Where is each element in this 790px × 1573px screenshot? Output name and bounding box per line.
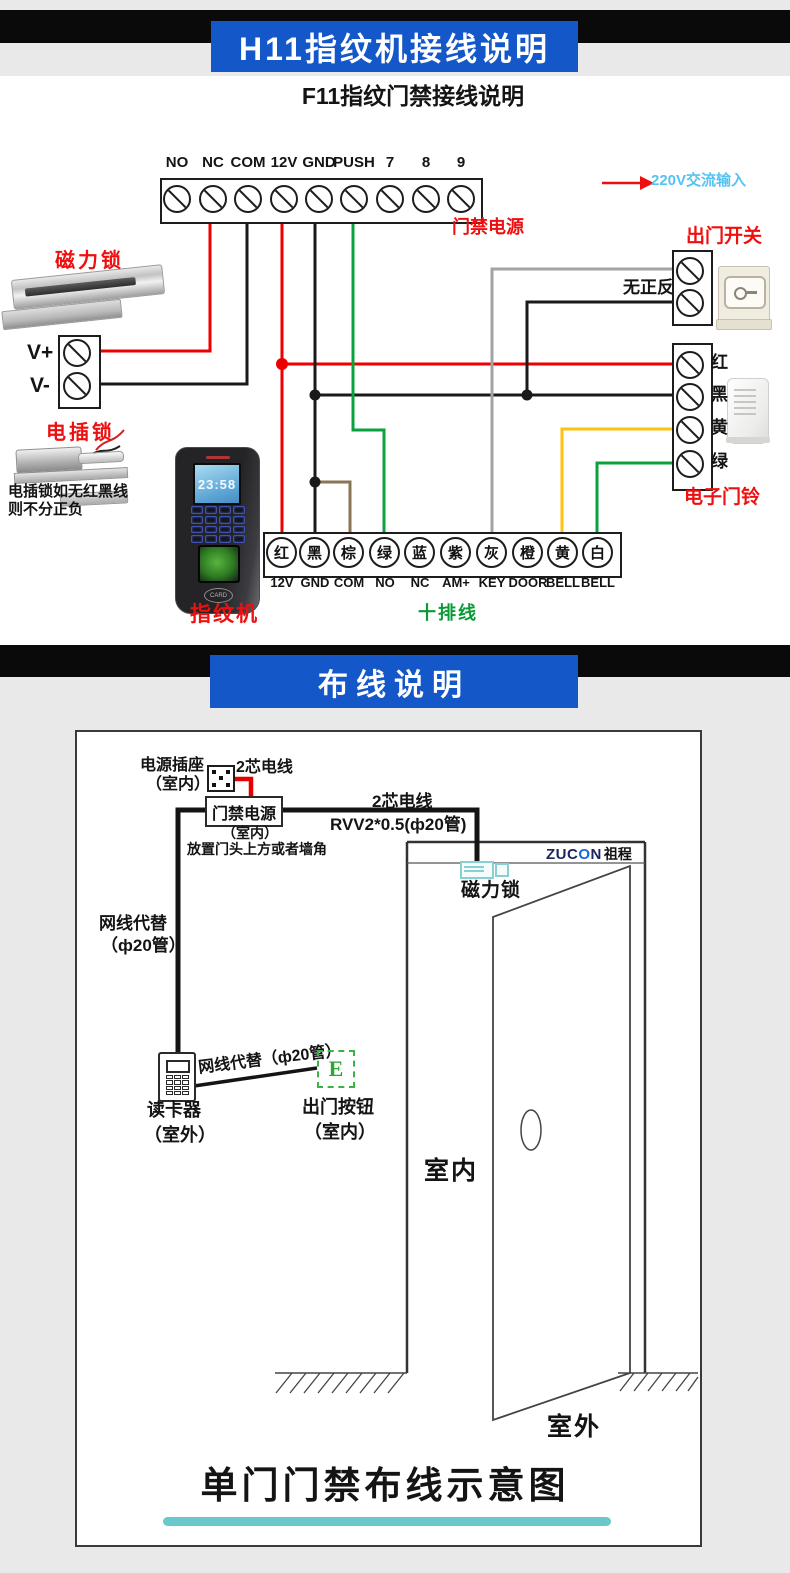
net-cable-left-line2: （ф20管） — [101, 937, 186, 956]
ten-wire-pin-label: BELL — [581, 576, 615, 590]
power-strip-screw-PUSH — [340, 185, 368, 213]
exit-button-label-line1: 出门按钮 — [302, 1098, 374, 1118]
section1-header: H11指纹机接线说明 — [211, 21, 578, 72]
psu-sub1: （室内） — [222, 826, 278, 841]
ten-wire-terminal-BELL: 黄 — [547, 537, 578, 568]
doorbell-terminal-label: 黄 — [711, 419, 728, 438]
maglock-label: 磁力锁 — [55, 250, 124, 272]
outdoor-label: 室外 — [547, 1414, 601, 1442]
section1-title: H11指纹机接线说明 — [239, 24, 550, 70]
doorbell-terminal-label: 红 — [711, 354, 728, 373]
fingerprint-device-photo: 23:58 CARD — [175, 447, 260, 614]
fingerprint-label: 指纹机 — [190, 603, 259, 626]
exit-button-photo — [718, 266, 770, 322]
doorbell-screw-4 — [676, 450, 704, 478]
power-strip-caption: 门禁电源 — [452, 218, 524, 238]
ten-wire-pin-label: NC — [411, 576, 430, 590]
psu-box-label: 门禁电源 — [212, 800, 276, 824]
reader-label-line1: 读卡器 — [147, 1101, 201, 1121]
power-strip-pin-label: NC — [202, 155, 224, 172]
ten-wire-pin-label: COM — [334, 576, 364, 590]
doorbell-screw-1 — [676, 351, 704, 379]
exit-switch-label: 出门开关 — [686, 227, 762, 248]
ten-wire-pin-label: GND — [301, 576, 330, 590]
two-core-wire-label-b2: RVV2*0.5(ф20管) — [330, 816, 466, 835]
ten-wire-terminal-NC: 蓝 — [404, 537, 435, 568]
doorbell-screw-3 — [676, 416, 704, 444]
v-plus-label: V+ — [27, 341, 53, 364]
wiring-lines — [0, 0, 790, 1573]
top-subtitle: F11指纹门禁接线说明 — [302, 84, 524, 109]
ten-wire-terminal-COM: 棕 — [333, 537, 364, 568]
exit-button-base — [716, 319, 772, 330]
ten-wire-terminal-KEY: 灰 — [476, 537, 507, 568]
psu-sub2: 放置门头上方或者墙角 — [187, 842, 327, 857]
fingerprint-screen: 23:58 — [193, 463, 241, 505]
fingerprint-led — [206, 456, 230, 459]
bottom-diagram-title: 单门门禁布线示意图 — [201, 1466, 570, 1507]
power-strip-pin-label: 9 — [457, 155, 465, 172]
socket-label-line2: （室内） — [146, 776, 210, 794]
power-strip-pin-label: 12V — [271, 155, 298, 172]
brand-cn: 祖程 — [604, 846, 632, 862]
bolt-note-line2: 则不分正负 — [8, 502, 83, 519]
section2-title: 布线说明 — [318, 660, 470, 704]
ten-wire-terminal-12V: 红 — [266, 537, 297, 568]
maglock-schematic-icon — [460, 861, 494, 879]
doorbell-screw-2 — [676, 383, 704, 411]
ten-wire-pin-label: 12V — [270, 576, 293, 590]
exit-button-panel — [724, 276, 766, 309]
ten-wire-pin-label: NO — [375, 576, 395, 590]
ten-wire-pin-label: DOOR — [509, 576, 548, 590]
exit-switch-screw-1 — [676, 257, 704, 285]
ten-wire-terminal-AM+: 紫 — [440, 537, 471, 568]
page: H11指纹机接线说明 布线说明 F11指纹门禁接线说明 门禁电源 220V交流输… — [0, 0, 790, 1573]
maglock-armature-icon — [495, 863, 509, 877]
maglock-schematic-label: 磁力锁 — [461, 881, 521, 902]
bolt-lock-label: 电插锁 — [46, 422, 115, 444]
fingerprint-clock: 23:58 — [198, 477, 236, 492]
reader-label-line2: （室外） — [144, 1126, 216, 1146]
v-minus-screw — [63, 372, 91, 400]
power-strip-pin-label: 8 — [422, 155, 430, 172]
exit-switch-screw-2 — [676, 289, 704, 317]
brand-gear-icon: O — [578, 846, 590, 863]
ten-wire-terminal-GND: 黑 — [299, 537, 330, 568]
bolt-note-line1: 电插锁如无红黑线 — [8, 484, 128, 501]
door-panel — [493, 866, 630, 1420]
power-strip-screw-8 — [412, 185, 440, 213]
power-socket-icon — [207, 765, 235, 792]
doorbell-photo — [727, 378, 769, 444]
doorbell-base — [726, 437, 770, 443]
net-cable-left-line1: 网线代替 — [99, 915, 167, 934]
doorbell-terminal-label: 绿 — [711, 453, 728, 472]
socket-label-line1: 电源插座 — [140, 757, 204, 775]
ten-wire-pin-label: KEY — [479, 576, 506, 590]
psu-box: 门禁电源 — [205, 796, 283, 827]
card-reader-keypad — [166, 1075, 189, 1095]
ten-wire-caption: 十排线 — [418, 604, 478, 624]
ten-wire-pin-label: BELL — [546, 576, 580, 590]
fingerprint-card-area: CARD — [204, 588, 233, 603]
junction-black-3 — [310, 477, 321, 488]
two-core-wire-label-a: 2芯电线 — [236, 759, 293, 777]
power-strip-pin-label: PUSH — [333, 155, 375, 172]
card-reader-display — [166, 1060, 190, 1073]
exit-button-letter: E — [329, 1056, 344, 1082]
ten-wire-pin-label: AM+ — [442, 576, 470, 590]
fingerprint-sensor — [198, 545, 240, 583]
power-strip-screw-GND — [305, 185, 333, 213]
ac-input-label: 220V交流输入 — [651, 173, 746, 190]
junction-red — [276, 358, 288, 370]
power-strip-pin-label: COM — [231, 155, 266, 172]
power-strip-screw-COM — [234, 185, 262, 213]
doorbell-speaker — [734, 389, 756, 417]
power-strip-screw-9 — [447, 185, 475, 213]
power-strip-pin-label: GND — [302, 155, 335, 172]
brand-zuc: ZUC — [546, 846, 578, 863]
ten-wire-terminal-BELL: 白 — [582, 537, 613, 568]
power-strip-screw-12V — [270, 185, 298, 213]
key-icon-bar — [746, 291, 757, 294]
exit-button-symbol: E — [317, 1050, 355, 1088]
ten-wire-terminal-DOOR: 橙 — [512, 537, 543, 568]
title-underline — [163, 1517, 611, 1526]
v-plus-screw — [63, 339, 91, 367]
brand-n: N — [591, 846, 602, 863]
two-core-wire-label-b1: 2芯电线 — [372, 793, 432, 812]
maglock-groove — [25, 277, 136, 297]
v-minus-label: V- — [30, 374, 50, 397]
brand-logo: ZUCON祖程 — [546, 844, 632, 864]
doorbell-label: 电子门铃 — [684, 488, 760, 509]
section2-header: 布线说明 — [210, 655, 578, 708]
fingerprint-keypad — [191, 506, 245, 543]
exit-button-label-line2: （室内） — [304, 1123, 376, 1143]
power-strip-screw-7 — [376, 185, 404, 213]
power-strip-pin-label: 7 — [386, 155, 394, 172]
card-reader-icon — [158, 1052, 196, 1102]
power-strip-screw-NO — [163, 185, 191, 213]
junction-black-1 — [310, 390, 321, 401]
indoor-label: 室内 — [424, 1158, 478, 1186]
ten-wire-terminal-NO: 绿 — [369, 537, 400, 568]
exit-switch-note: 无正反 — [623, 279, 674, 298]
power-strip-screw-NC — [199, 185, 227, 213]
power-strip-pin-label: NO — [166, 155, 189, 172]
bolt-lock-body — [15, 446, 82, 473]
doorbell-terminal-label: 黑 — [711, 386, 728, 405]
